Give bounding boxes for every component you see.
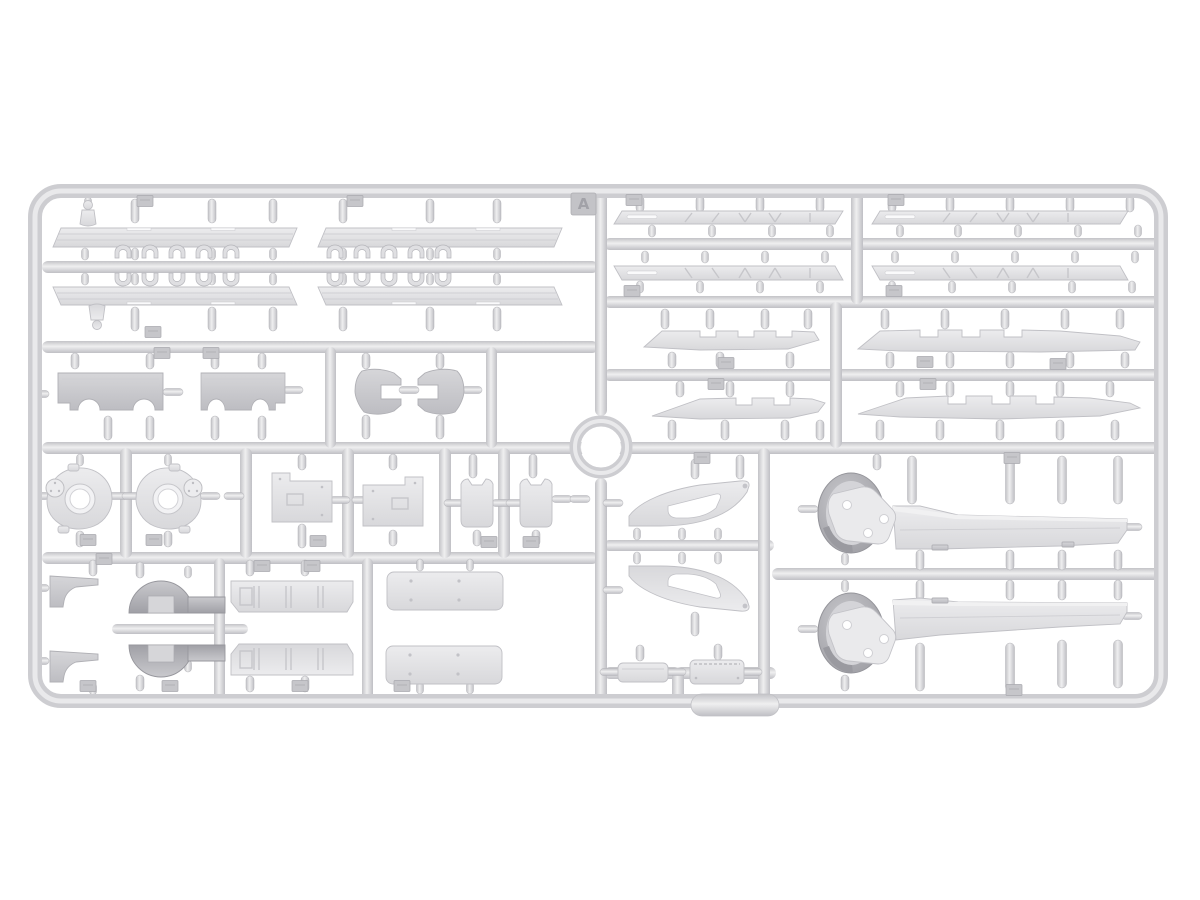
lifting-shackle-top: [80, 201, 96, 227]
crane-jib-arm-bottom: [818, 593, 1127, 673]
runner-h-left-1: [42, 261, 598, 273]
runner-h-gusset: [604, 540, 774, 551]
crane-jib-arm-top: [818, 473, 1127, 553]
runner-v-right-mid: [830, 302, 842, 448]
runner-h-right-1: [604, 238, 1160, 250]
two-prong-plate-2: [520, 479, 552, 527]
arched-engine-panel-right: [201, 373, 285, 410]
center-ring: [575, 421, 627, 473]
sprue-drawing: A: [0, 0, 1200, 900]
runner-v-tl2: [486, 347, 497, 448]
gusset-bracket-bottom: [629, 566, 749, 611]
lifting-shackle-bottom: [89, 304, 105, 330]
step-bracket-1: [50, 576, 98, 607]
runner-v-bl7: [362, 558, 373, 701]
arched-engine-panel-left: [58, 373, 163, 410]
runner-v-tl1: [325, 347, 336, 448]
two-prong-plate-1: [461, 479, 493, 527]
runner-v-bl2: [240, 448, 252, 558]
drum-cover-bottom: [129, 645, 225, 677]
runner-h-arms: [772, 568, 1161, 580]
runner-h-axle: [112, 624, 248, 634]
final-drive-housing-left: [46, 464, 112, 533]
hatch-plate-left: [272, 473, 332, 522]
runner-v-center-top: [595, 191, 607, 416]
runner-h-left-2: [42, 341, 598, 353]
final-drive-housing-right: [136, 464, 202, 533]
blank-panel-1: [387, 572, 503, 610]
gusset-bracket-top: [629, 481, 749, 526]
step-bracket-2: [50, 651, 98, 682]
sprue-handle-tab: [691, 694, 779, 716]
runner-v-gusset-divider: [758, 448, 770, 701]
runner-v-right-top: [851, 191, 863, 304]
sprue-letter-tag: A: [571, 193, 596, 215]
ribbed-strip-2: [231, 644, 353, 675]
runner-h-right-3: [604, 369, 1160, 381]
sprue-letter: A: [578, 195, 590, 213]
blank-panel-2: [386, 646, 502, 684]
sprue-photo: A: [0, 0, 1200, 900]
runner-v-bl1: [120, 448, 132, 558]
runner-v-bl6: [214, 558, 225, 701]
runner-h-right-2: [604, 296, 1160, 308]
hatch-plate-right: [363, 477, 423, 526]
ribbed-strip-1: [231, 581, 353, 612]
drum-cover-top: [129, 581, 225, 613]
